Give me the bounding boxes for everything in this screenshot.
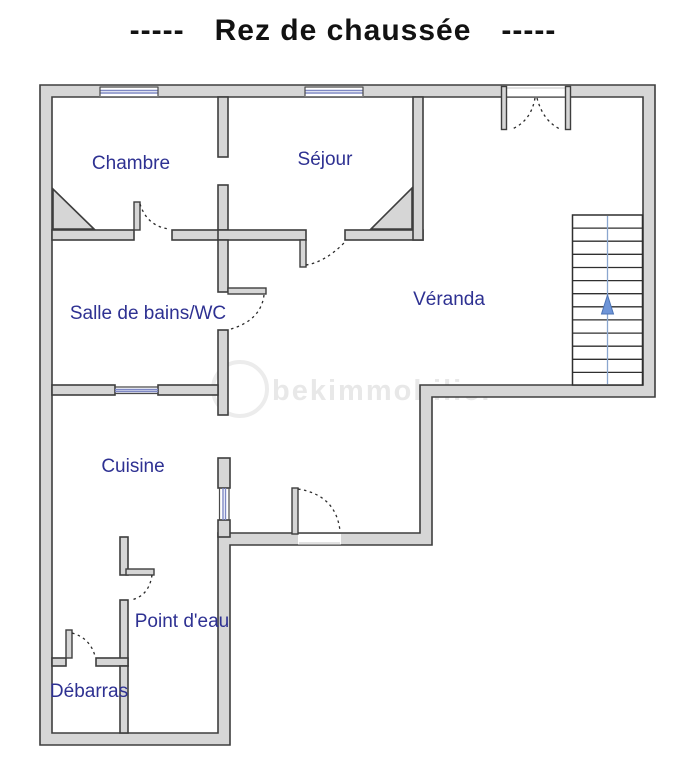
wall-chambre-bottom-left — [52, 230, 134, 240]
door-sejour — [300, 240, 344, 267]
wall-debarras-top-left — [52, 658, 66, 666]
wall-bathroom-right-upper — [218, 240, 228, 292]
door-swing-arc — [72, 633, 95, 656]
door-chambre — [134, 202, 169, 230]
room-label-point-deau: Point d'eau — [135, 611, 229, 632]
door-leaf — [228, 288, 266, 294]
room-label-veranda: Véranda — [413, 289, 485, 310]
door-salle-de-bains — [228, 288, 266, 329]
door-swing-arc — [306, 243, 344, 265]
door-swing-arc — [512, 98, 535, 129]
wall-bathroom-bottom-right — [158, 385, 218, 395]
wall-bathroom-right-lower — [218, 330, 228, 415]
chimney-corners — [53, 188, 412, 229]
wall-chambre-sejour-upper — [218, 97, 228, 157]
outer-walls — [40, 85, 655, 745]
door-point-deau — [126, 569, 154, 600]
staircase — [573, 215, 643, 385]
door-swing-arc — [537, 98, 560, 129]
door-veranda-exterior — [292, 488, 341, 545]
wall-sejour-bottom-right — [345, 230, 423, 240]
exterior-wall — [40, 85, 655, 745]
door-jamb — [566, 87, 571, 130]
door-swing-arc — [131, 575, 152, 600]
door-leaf — [126, 569, 154, 575]
door-jamb — [502, 87, 507, 130]
chimney-corner-sejour — [371, 188, 412, 229]
wall-sejour-bottom-left — [218, 230, 306, 240]
room-label-debarras: Débarras — [50, 681, 128, 702]
door-leaf — [292, 488, 298, 534]
room-label-sejour: Séjour — [298, 149, 354, 170]
floor-plan-page: ----- Rez de chaussée ----- bekimmobilie… — [0, 0, 686, 776]
wall-bathroom-bottom-left — [52, 385, 115, 395]
door-leaf — [134, 202, 140, 230]
door-leaf — [300, 240, 306, 267]
window-sejour — [305, 86, 364, 96]
wall-cuisine-right-upper — [218, 458, 230, 488]
wall-sejour-right — [413, 97, 423, 240]
room-label-chambre: Chambre — [92, 153, 170, 174]
door-debarras — [66, 630, 95, 658]
door-swing-arc — [140, 204, 169, 229]
wall-debarras-top-right — [96, 658, 128, 666]
door-swing-arc — [298, 489, 340, 531]
room-label-salle-de-bains: Salle de bains/WC — [70, 303, 226, 324]
window-chambre — [100, 86, 159, 96]
room-label-cuisine: Cuisine — [101, 456, 164, 477]
chimney-corner-chambre — [53, 189, 94, 229]
wall-cuisine-right-lower — [218, 520, 230, 537]
door-swing-arc — [231, 295, 264, 329]
floor-plan: bekimmobilier — [0, 0, 686, 776]
window-cuisine — [220, 488, 230, 520]
wall-point-deau-left-lower — [120, 600, 128, 666]
window-salle-de-bains — [115, 387, 158, 394]
door-leaf — [66, 630, 72, 658]
entry-double-door — [502, 86, 571, 130]
